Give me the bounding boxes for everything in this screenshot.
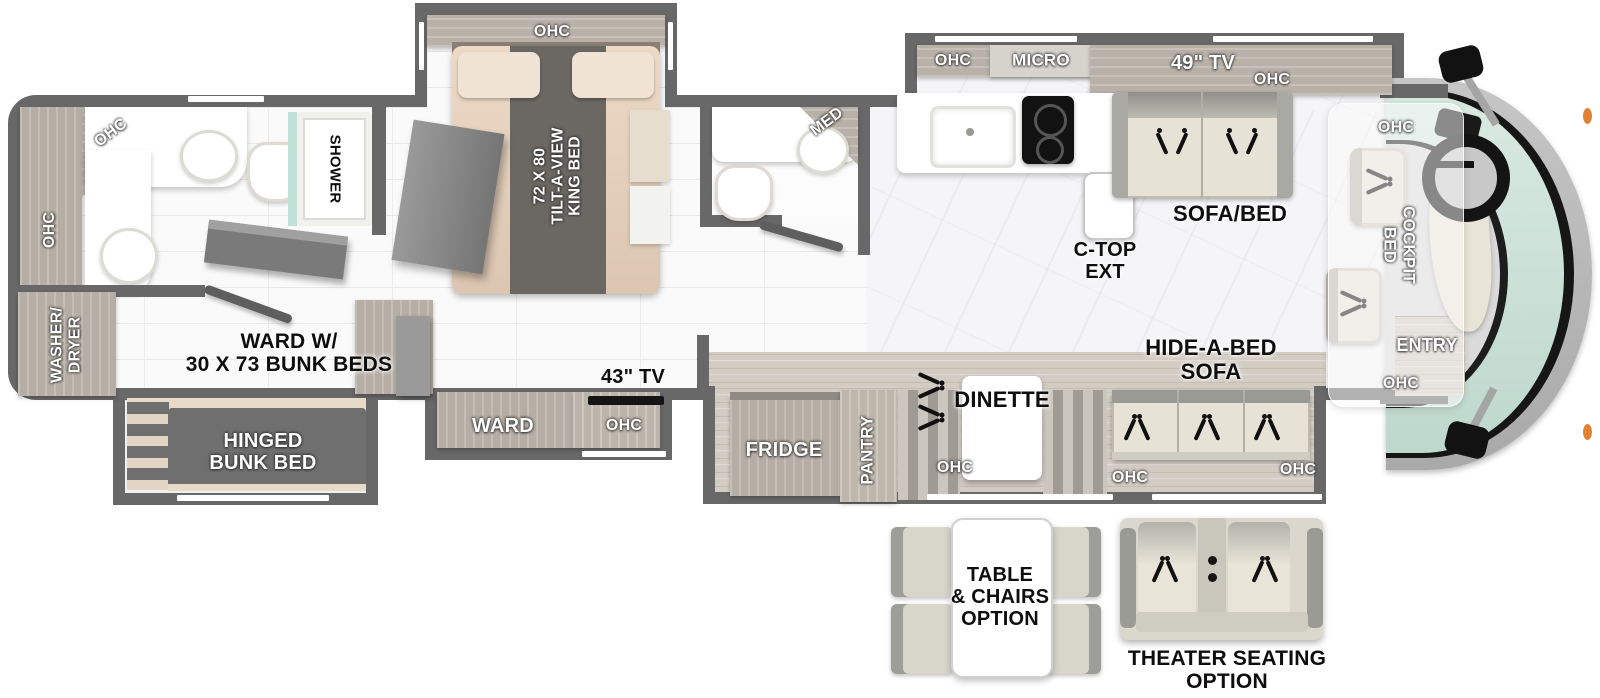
pillow <box>572 52 654 98</box>
label-king-bed: 72 X 80 TILT-A-VIEW KING BED <box>532 128 585 225</box>
sofa-seam <box>1201 92 1203 198</box>
dinette-bench <box>1043 390 1107 500</box>
ward-panel <box>396 316 430 396</box>
label-ohc-slide3: OHC <box>1280 461 1316 479</box>
toilet <box>715 165 773 221</box>
sofa-bed-arm <box>1112 92 1128 198</box>
slide-wall <box>703 386 715 504</box>
seatbelt-icon <box>918 401 945 435</box>
seatbelt-icon <box>1190 414 1224 441</box>
tv-wall-cabinet <box>1090 45 1392 95</box>
label-washer-dryer: WASHER/ DRYER <box>48 307 83 383</box>
slide-wall <box>113 398 125 505</box>
cupholder <box>1208 573 1217 582</box>
fridge-top <box>730 392 840 400</box>
sofa-seam <box>1177 390 1179 460</box>
kitchen-sink <box>930 106 1016 168</box>
seatbelt-icon <box>1148 556 1182 583</box>
label-ctop-ext: C-TOP EXT <box>1074 239 1137 283</box>
label-table-chairs-option: TABLE & CHAIRS OPTION <box>951 564 1049 630</box>
bunk-mattress-edge <box>168 484 366 491</box>
bath-sink <box>100 228 158 284</box>
seatbelt-icon <box>1155 128 1189 155</box>
cupholder <box>1208 556 1217 565</box>
label-hinged-bunk: HINGED BUNK BED <box>209 430 316 474</box>
label-pantry: PANTRY <box>859 415 878 484</box>
bath-sink <box>180 130 238 182</box>
label-entry: ENTRY <box>1396 336 1457 356</box>
burner <box>1034 104 1067 137</box>
kitchen-faucet <box>966 128 974 136</box>
seatbelt-icon <box>1248 556 1282 583</box>
theater-seat-front <box>1136 612 1308 632</box>
label-ward: WARD <box>472 415 534 437</box>
rear-bath-side-cabinet <box>20 107 82 287</box>
bedroom-dresser2 <box>630 186 670 244</box>
label-tv43: 43" TV <box>601 366 665 388</box>
label-ohc-cockpit-top: OHC <box>1378 119 1414 137</box>
hall-wall-stub <box>697 335 709 395</box>
label-shower: SHOWER <box>326 135 343 204</box>
slide-indicator <box>582 451 666 457</box>
label-ward-bunks: WARD W/ 30 X 73 BUNK BEDS <box>186 330 392 376</box>
seatbelt-icon <box>1250 414 1284 441</box>
mid-bath-wall <box>858 107 870 255</box>
slide-indicator <box>1213 36 1373 42</box>
option-chair <box>1045 604 1101 674</box>
side-mirror <box>1437 43 1485 84</box>
option-chair <box>891 527 953 597</box>
slide-indicator <box>177 495 329 501</box>
slide-indicator <box>927 494 1113 500</box>
slide-wall <box>1314 386 1326 504</box>
mid-bath-wall <box>700 107 712 227</box>
label-fridge: FRIDGE <box>746 439 823 461</box>
slide-indicator <box>935 36 1077 42</box>
floorplan-canvas: OHC OHC SHOWER WASHER/ DRYER WARD W/ 30 … <box>0 0 1600 698</box>
slide-wall <box>415 3 677 15</box>
label-theater-option: THEATER SEATING OPTION <box>1128 647 1326 693</box>
label-tv49: 49" TV <box>1171 52 1235 74</box>
shower-wall <box>372 107 386 235</box>
option-chair <box>891 604 953 674</box>
theater-armrest <box>1120 528 1136 628</box>
label-ohc-kitchen: OHC <box>935 52 971 70</box>
bedroom-nightstand <box>630 110 670 182</box>
slide-indicator <box>668 22 673 70</box>
label-dinette: DINETTE <box>954 388 1050 412</box>
marker-light <box>1583 424 1592 440</box>
pillow <box>458 52 540 98</box>
seatbelt-icon <box>1225 128 1259 155</box>
bunk-ladder <box>127 402 169 490</box>
hide-a-bed-back <box>1112 390 1310 403</box>
sofa-bed-arm <box>1277 92 1293 198</box>
label-cockpit-bed: COCKPIT BED <box>1380 206 1417 284</box>
label-ohc-king: OHC <box>534 23 570 41</box>
slide-wall <box>366 398 378 505</box>
label-micro: MICRO <box>1012 52 1070 71</box>
option-chair <box>1045 527 1101 597</box>
slide-indicator <box>419 22 424 70</box>
label-hide-a-bed: HIDE-A-BED SOFA <box>1145 336 1277 384</box>
label-ohc-slide2: OHC <box>1112 469 1148 487</box>
theater-armrest <box>1307 528 1323 628</box>
burner <box>1036 136 1064 164</box>
label-ohc-rear-wall: OHC <box>41 212 59 248</box>
sofa-seam <box>1243 390 1245 460</box>
marker-light <box>1583 108 1592 124</box>
seatbelt-icon <box>1120 414 1154 441</box>
tv43-screen <box>588 396 664 405</box>
seatbelt-icon <box>918 369 945 403</box>
label-sofa-bed: SOFA/BED <box>1173 202 1287 226</box>
slide-indicator <box>188 96 264 102</box>
label-ohc-tvwall: OHC <box>1254 71 1290 89</box>
label-ohc-slide1: OHC <box>937 459 973 477</box>
slide-indicator <box>1152 494 1322 500</box>
label-ohc-ward: OHC <box>606 417 642 435</box>
shower-glass <box>288 112 297 226</box>
hide-a-bed-front <box>1112 452 1310 460</box>
label-ohc-cockpit-bottom: OHC <box>1383 375 1419 393</box>
